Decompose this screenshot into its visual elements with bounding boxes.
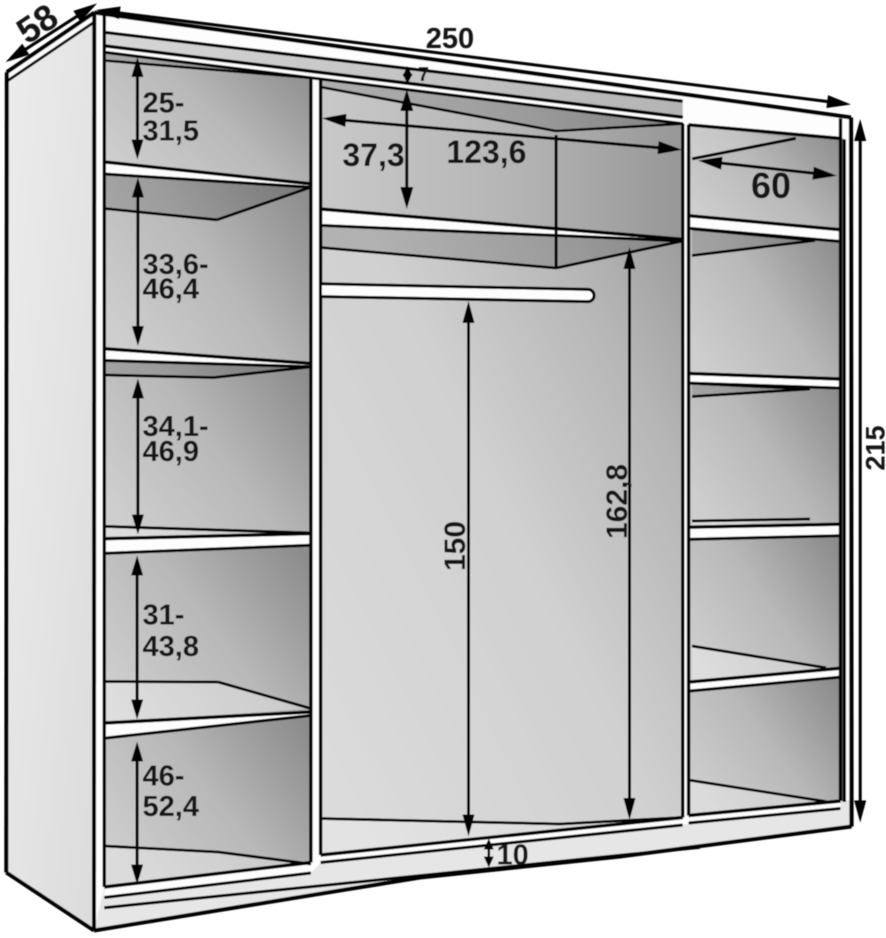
svg-text:31-: 31- (143, 600, 185, 632)
svg-text:123,6: 123,6 (446, 134, 526, 170)
svg-text:215: 215 (861, 425, 886, 470)
svg-text:46,9: 46,9 (143, 436, 199, 468)
svg-text:31,5: 31,5 (143, 116, 199, 148)
svg-text:37,3: 37,3 (342, 137, 404, 173)
svg-text:150: 150 (439, 521, 472, 571)
svg-text:162,8: 162,8 (601, 464, 634, 539)
svg-text:43,8: 43,8 (143, 631, 199, 663)
svg-text:46-: 46- (143, 761, 185, 793)
svg-text:52,4: 52,4 (143, 791, 199, 823)
svg-text:7: 7 (418, 64, 429, 86)
svg-text:60: 60 (751, 165, 791, 206)
svg-text:10: 10 (497, 840, 529, 872)
svg-text:46,4: 46,4 (143, 274, 199, 306)
svg-text:250: 250 (426, 23, 474, 55)
